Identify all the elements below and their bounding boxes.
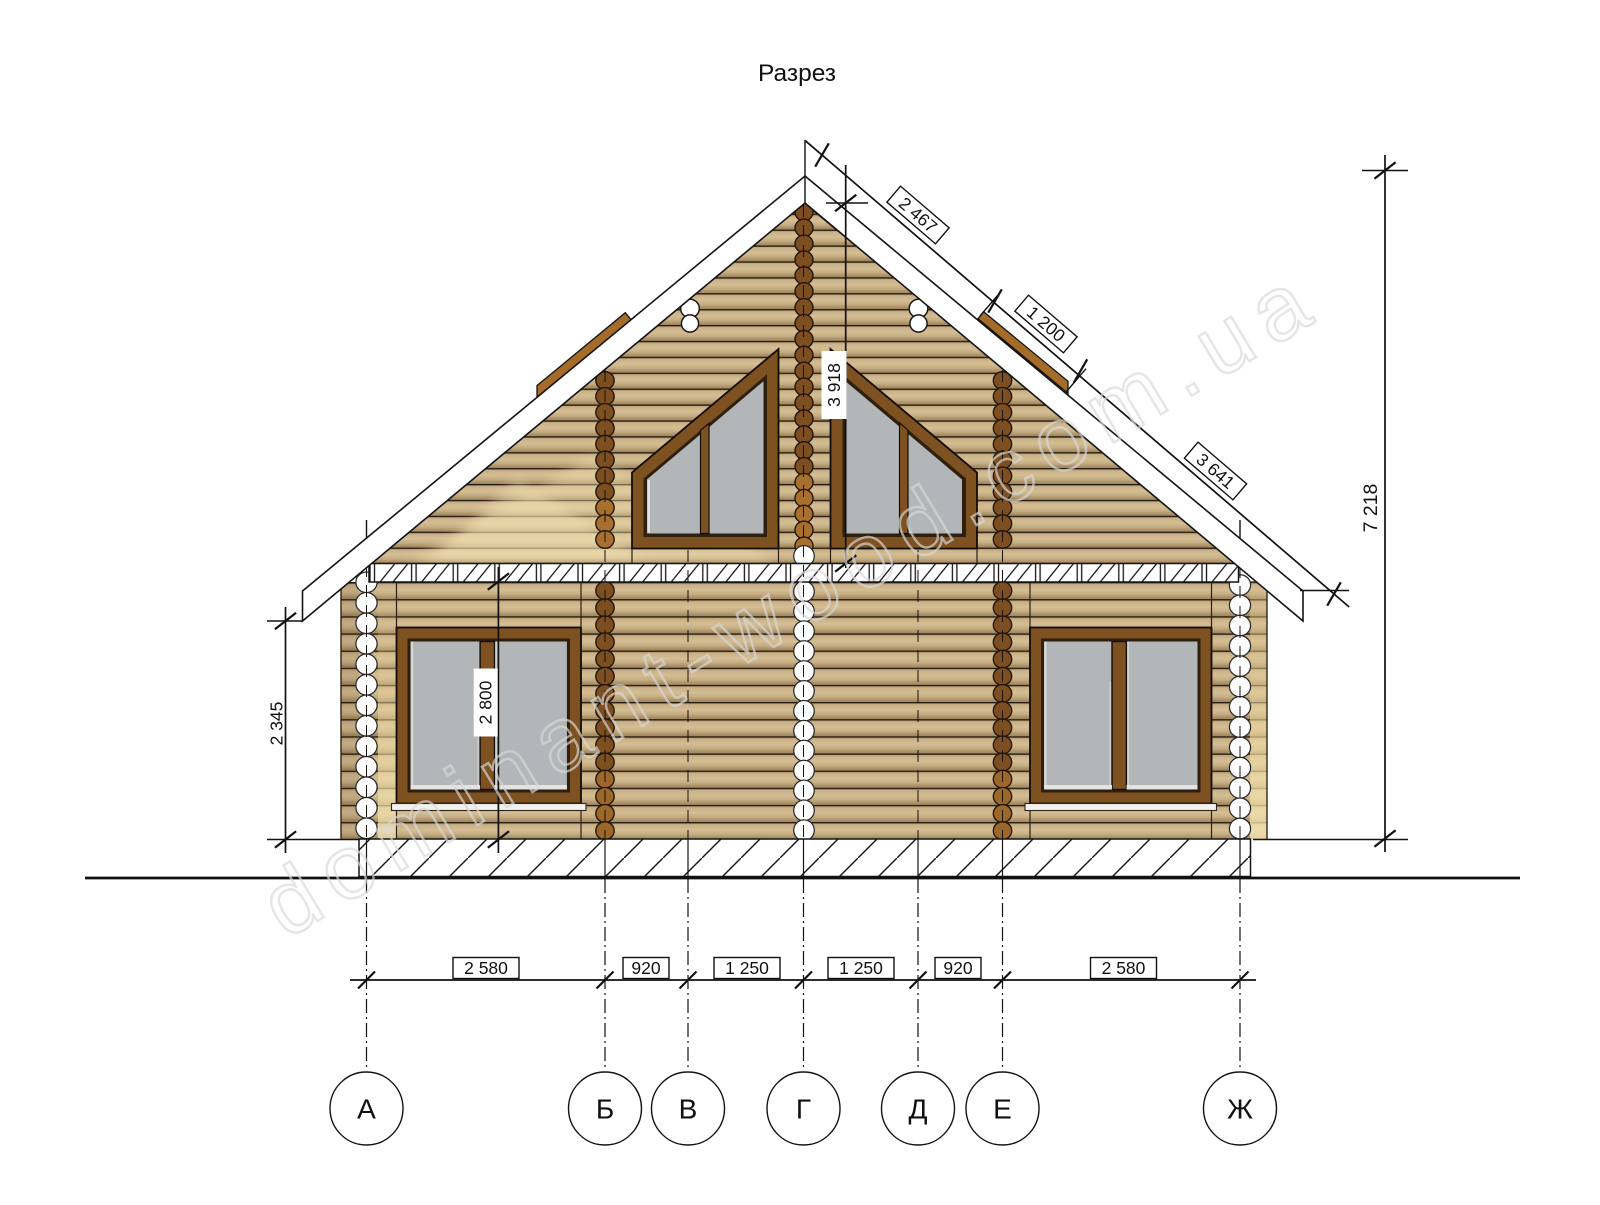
svg-text:920: 920 — [631, 958, 660, 978]
svg-text:А: А — [357, 1094, 376, 1125]
svg-text:920: 920 — [943, 958, 972, 978]
svg-text:В: В — [679, 1094, 698, 1125]
svg-text:Ж: Ж — [1227, 1094, 1253, 1125]
svg-text:Д: Д — [909, 1094, 928, 1125]
svg-text:2 580: 2 580 — [464, 958, 508, 978]
svg-text:7 218: 7 218 — [1360, 484, 1382, 533]
svg-text:Е: Е — [993, 1094, 1012, 1125]
svg-text:1 250: 1 250 — [725, 958, 769, 978]
svg-text:2 345: 2 345 — [267, 702, 287, 746]
svg-text:2 580: 2 580 — [1102, 958, 1146, 978]
svg-text:Б: Б — [596, 1094, 614, 1125]
svg-text:Г: Г — [796, 1094, 811, 1125]
svg-text:2 800: 2 800 — [476, 680, 496, 724]
svg-text:3 918: 3 918 — [824, 363, 844, 407]
svg-text:Разрез: Разрез — [758, 60, 836, 87]
svg-text:1 250: 1 250 — [839, 958, 883, 978]
